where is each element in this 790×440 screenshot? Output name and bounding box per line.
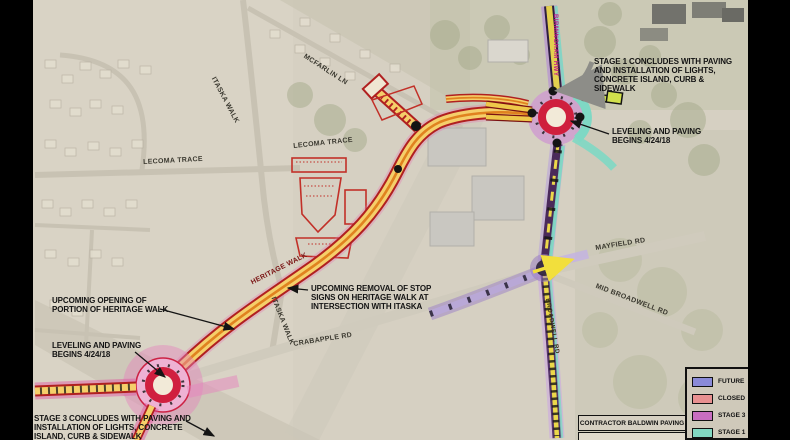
annotation-stage1-concludes: STAGE 1 CONCLUDES WITH PAVING AND INSTAL… — [594, 57, 746, 93]
annotation-upcoming-opening: UPCOMING OPENING OF PORTION OF HERITAGE … — [52, 296, 174, 314]
legend-swatch-stage1 — [692, 428, 713, 438]
annotation-stage3-concludes: STAGE 3 CONCLUDES WITH PAVING AND INSTAL… — [34, 414, 204, 440]
letterbox-left — [0, 0, 33, 440]
road-label-birmingham-hwy: BIRMINGHAM HWY — [552, 14, 558, 76]
legend-label-closed: CLOSED — [718, 395, 745, 402]
legend-label-stage1: STAGE 1 — [718, 429, 745, 436]
construction-phasing-map: ITASKA WALK MCFARLIN LN LECOMA TRACE LEC… — [0, 0, 790, 440]
legend-swatch-stage3 — [692, 411, 713, 421]
legend-label-future: FUTURE — [718, 378, 744, 385]
contractor-label: CONTRACTOR BALDWIN PAVING — [580, 420, 684, 427]
legend-swatch-closed — [692, 394, 713, 404]
contractor-box-empty — [578, 432, 686, 440]
annotation-leveling-paving-ne: LEVELING AND PAVING BEGINS 4/24/18 — [612, 127, 712, 145]
contractor-box: CONTRACTOR BALDWIN PAVING — [578, 415, 686, 431]
legend-swatch-future — [692, 377, 713, 387]
legend-label-stage3: STAGE 3 — [718, 412, 745, 419]
annotation-leveling-paving-sw: LEVELING AND PAVING BEGINS 4/24/18 — [52, 341, 152, 359]
letterbox-right — [748, 0, 790, 440]
annotation-stop-sign-removal: UPCOMING REMOVAL OF STOP SIGNS ON HERITA… — [311, 284, 439, 311]
